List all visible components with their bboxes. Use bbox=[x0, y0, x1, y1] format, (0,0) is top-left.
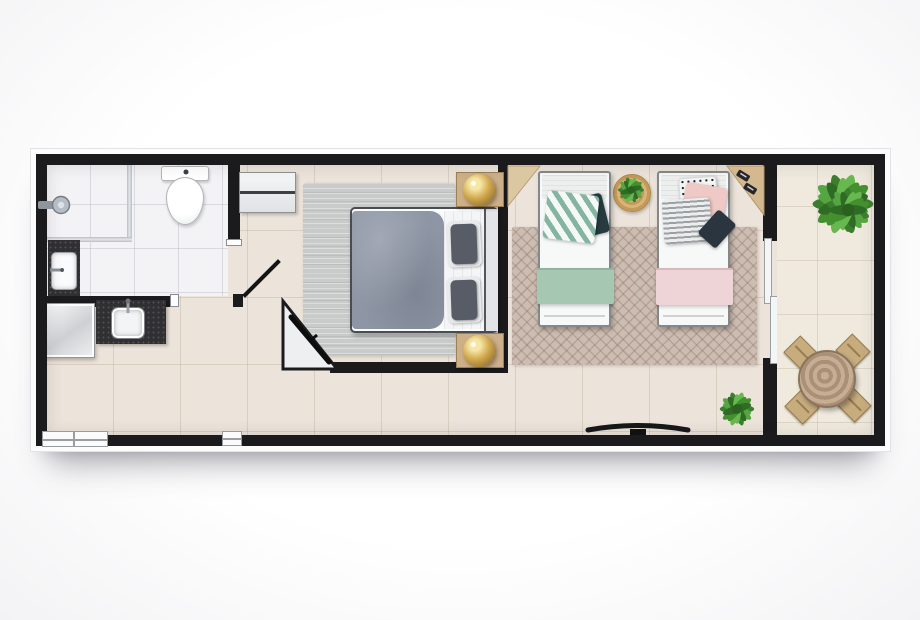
duvet bbox=[352, 211, 444, 329]
door-frame-cap bbox=[170, 294, 179, 307]
balcony-wall-bottom bbox=[763, 358, 777, 435]
balcony-wall-top bbox=[763, 165, 777, 241]
window-mullion bbox=[223, 438, 241, 440]
door-frame-cap bbox=[226, 239, 242, 246]
bed-foot-seam bbox=[544, 315, 605, 317]
brass-lamp bbox=[463, 174, 495, 206]
dresser bbox=[239, 172, 296, 213]
apartment-floor bbox=[47, 165, 874, 435]
door-corner-post bbox=[233, 294, 243, 307]
bed-foot-seam bbox=[663, 315, 724, 317]
round-jute-rug bbox=[613, 174, 651, 212]
kitchen-sink bbox=[112, 308, 144, 338]
headboard bbox=[484, 209, 498, 331]
window-divider bbox=[73, 432, 75, 446]
pillow-dark bbox=[450, 224, 477, 265]
kitchen-appliance bbox=[47, 304, 94, 357]
wall-frame-notch bbox=[222, 431, 242, 446]
pillow-chevron-teal bbox=[542, 190, 599, 244]
floor-plan-stage bbox=[0, 0, 920, 620]
twin-bed-right bbox=[657, 171, 730, 327]
window-mullion bbox=[43, 439, 107, 441]
dresser-drawer-line bbox=[240, 191, 295, 194]
sliding-glass-door-panel bbox=[764, 238, 772, 304]
blanket-pink bbox=[656, 268, 733, 305]
balcony-table bbox=[798, 350, 856, 408]
shower-glass-panel bbox=[127, 165, 132, 242]
twin-bed-left bbox=[538, 171, 611, 327]
window-bottom-left bbox=[42, 431, 108, 447]
blanket-green bbox=[537, 268, 614, 304]
double-bed bbox=[350, 207, 498, 333]
pillow-dark bbox=[450, 280, 477, 321]
bathroom-sink bbox=[51, 252, 77, 290]
brass-lamp bbox=[463, 335, 495, 367]
